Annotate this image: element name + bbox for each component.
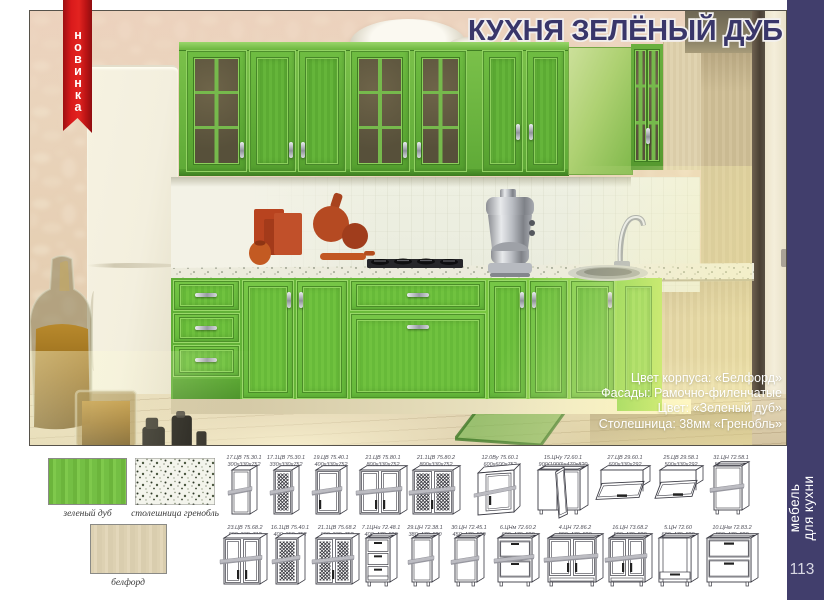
svg-text:27.ЦВ 29.60.1: 27.ЦВ 29.60.1 [606, 455, 642, 461]
svg-text:16.ЦН 73.68.2: 16.ЦН 73.68.2 [612, 525, 648, 531]
svg-text:29.ЦН 72.38.1: 29.ЦН 72.38.1 [406, 525, 443, 531]
svg-text:21.1ЦВ 75.80.2: 21.1ЦВ 75.80.2 [416, 455, 455, 461]
svg-text:15.ЦНу 72.60.1: 15.ЦНу 72.60.1 [544, 455, 582, 461]
svg-text:5.ЦН 72.60: 5.ЦН 72.60 [664, 525, 693, 531]
svg-text:30.ЦН 72.45.1: 30.ЦН 72.45.1 [451, 525, 487, 531]
svg-text:16.1ЦВ 75.40.1: 16.1ЦВ 75.40.1 [271, 525, 309, 531]
svg-text:7.1ЦНи 72.48.1: 7.1ЦНи 72.48.1 [362, 525, 401, 531]
svg-text:6.ЦНм 72.60.2: 6.ЦНм 72.60.2 [500, 525, 536, 531]
svg-text:12.0Ву 75.60.1: 12.0Ву 75.60.1 [482, 455, 519, 461]
svg-text:21.ЦВ 75.80.1: 21.ЦВ 75.80.1 [364, 455, 400, 461]
svg-text:4.ЦН 72.86.2: 4.ЦН 72.86.2 [559, 525, 591, 531]
svg-text:10.ЦНм 72.83.2: 10.ЦНм 72.83.2 [712, 525, 751, 531]
svg-text:21.1ЦВ 75.68.2: 21.1ЦВ 75.68.2 [317, 525, 356, 531]
svg-text:17.1ЦВ 75.30.1: 17.1ЦВ 75.30.1 [267, 455, 305, 461]
svg-text:19.ЦВ 75.40.1: 19.ЦВ 75.40.1 [313, 455, 348, 461]
svg-text:25.ЦВ 29.58.1: 25.ЦВ 29.58.1 [662, 455, 698, 461]
svg-text:17.ЦВ 75.30.1: 17.ЦВ 75.30.1 [226, 455, 261, 461]
svg-text:23.ЦВ 75.68.2: 23.ЦВ 75.68.2 [226, 525, 262, 531]
svg-text:31.ЦН 72.58.1: 31.ЦН 72.58.1 [713, 455, 749, 461]
